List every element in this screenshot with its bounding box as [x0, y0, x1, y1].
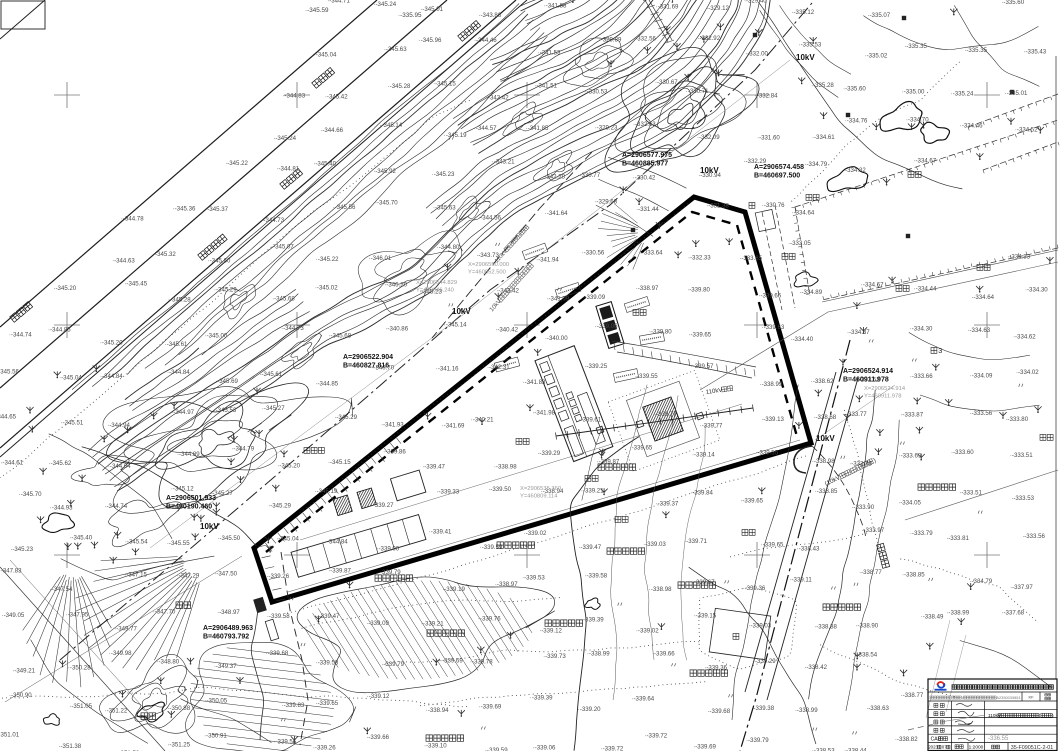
svg-text:·-338.77: ·-338.77: [901, 692, 924, 699]
svg-text:·-338.90: ·-338.90: [856, 622, 879, 629]
svg-text:·-339.06: ·-339.06: [595, 323, 618, 330]
svg-text:·-345.51: ·-345.51: [61, 420, 84, 427]
svg-text:·-334.05: ·-334.05: [898, 500, 921, 507]
svg-text:·-347.29: ·-347.29: [177, 573, 200, 580]
svg-text:·-333.80: ·-333.80: [1005, 416, 1028, 423]
svg-text:Y=460846.240: Y=460846.240: [416, 288, 454, 294]
svg-text:·-338.42: ·-338.42: [804, 664, 827, 671]
svg-text:·-344.64: ·-344.64: [108, 463, 131, 470]
svg-text:·-339.65: ·-339.65: [316, 700, 339, 707]
svg-text:·-338.43: ·-338.43: [797, 546, 820, 553]
svg-text:·-333.81: ·-333.81: [946, 535, 969, 542]
svg-text:·-339.79: ·-339.79: [381, 661, 404, 668]
svg-text:·-338.49: ·-338.49: [921, 613, 944, 620]
svg-text:·-335.02: ·-335.02: [865, 53, 888, 60]
svg-text:·-339.66: ·-339.66: [652, 651, 675, 658]
svg-text:·-344.73: ·-344.73: [261, 217, 284, 224]
svg-text:·-333.77: ·-333.77: [844, 411, 867, 418]
svg-text:·-345.15: ·-345.15: [433, 81, 456, 88]
svg-text:3: 3: [938, 346, 942, 355]
svg-text:·-344.85: ·-344.85: [316, 381, 339, 388]
svg-text:·-339.13: ·-339.13: [761, 416, 784, 423]
svg-text:·-334.70: ·-334.70: [906, 116, 929, 123]
svg-text:·-335.95: ·-335.95: [398, 12, 422, 19]
svg-text:B=460190.460: B=460190.460: [166, 504, 212, 511]
svg-text:·-334.76: ·-334.76: [845, 118, 868, 125]
svg-text:·-348.97: ·-348.97: [217, 609, 240, 616]
svg-text:·-333.51: ·-333.51: [1010, 452, 1033, 459]
svg-text:·-334.37: ·-334.37: [847, 329, 870, 336]
svg-text:·-339.86: ·-339.86: [383, 448, 406, 455]
svg-text:·-341.85: ·-341.85: [526, 125, 549, 132]
svg-text:·-333.69: ·-333.69: [899, 452, 922, 459]
svg-text:·-345.23: ·-345.23: [10, 546, 33, 553]
svg-text:·-333.87: ·-333.87: [900, 412, 923, 419]
svg-text:·-335.12: ·-335.12: [792, 9, 815, 16]
svg-text:·-345.68: ·-345.68: [328, 333, 351, 340]
svg-text:·-346.01: ·-346.01: [369, 255, 392, 262]
svg-text:·-341.53: ·-341.53: [538, 49, 561, 56]
svg-text:·-345.42: ·-345.42: [325, 94, 348, 101]
svg-text:·-351.38: ·-351.38: [59, 743, 82, 750]
svg-text:·-339.57: ·-339.57: [691, 363, 714, 370]
svg-text:·-339.33: ·-339.33: [437, 489, 460, 496]
svg-text:·-339.15: ·-339.15: [694, 613, 717, 620]
svg-text:·-344.56: ·-344.56: [478, 215, 501, 222]
svg-text:A=2906522.904: A=2906522.904: [343, 354, 393, 361]
svg-text:·-339.02: ·-339.02: [636, 627, 659, 634]
svg-text:·-339.87: ·-339.87: [597, 458, 620, 465]
svg-text:·-330.76: ·-330.76: [762, 202, 785, 209]
svg-text:·-338.85: ·-338.85: [902, 571, 925, 578]
svg-text:·-339.66: ·-339.66: [759, 292, 782, 299]
svg-text:·-338.63: ·-338.63: [866, 705, 889, 712]
svg-text:·-345.27: ·-345.27: [262, 405, 285, 412]
svg-text:A=2906577.975: A=2906577.975: [622, 152, 672, 159]
svg-text:·-345.20: ·-345.20: [54, 285, 77, 292]
svg-text:·-345.04: ·-345.04: [276, 536, 299, 543]
svg-text:·-345.29: ·-345.29: [214, 286, 237, 293]
svg-text:·-329.12: ·-329.12: [706, 5, 729, 12]
svg-text:·-339.41: ·-339.41: [429, 528, 452, 535]
svg-text:·-334.79: ·-334.79: [970, 578, 993, 585]
svg-text:·-339.11: ·-339.11: [790, 577, 813, 584]
svg-text:·-345.20: ·-345.20: [277, 463, 300, 470]
svg-text:·-333.97: ·-333.97: [862, 527, 885, 534]
svg-text:·-334.02: ·-334.02: [1016, 369, 1039, 376]
svg-text:·-333.66: ·-333.66: [910, 373, 933, 380]
svg-text:·-344.61: ·-344.61: [0, 460, 23, 467]
svg-text:·-338.88: ·-338.88: [814, 624, 837, 631]
svg-text:·-345.00: ·-345.00: [205, 332, 228, 339]
svg-text:·-339.65: ·-339.65: [761, 541, 784, 548]
svg-text:·-339.36: ·-339.36: [743, 585, 766, 592]
svg-text:·-340.21: ·-340.21: [471, 417, 494, 424]
svg-text:·-338.82: ·-338.82: [895, 736, 918, 743]
svg-text:·-341.09: ·-341.09: [547, 295, 570, 302]
svg-text:·-339.77: ·-339.77: [654, 411, 677, 418]
svg-text:·-345.20: ·-345.20: [100, 340, 123, 347]
svg-text:·-341.64: ·-341.64: [545, 210, 568, 217]
svg-text:A=2906524.914: A=2906524.914: [843, 368, 893, 375]
svg-text:·-345.19: ·-345.19: [444, 132, 467, 139]
svg-text:·-335.24: ·-335.24: [951, 91, 974, 98]
svg-text:·-338.99: ·-338.99: [795, 707, 818, 714]
svg-text:·-339.72: ·-339.72: [601, 745, 624, 751]
svg-text:·-339.59: ·-339.59: [485, 747, 508, 751]
svg-text:·-347.50: ·-347.50: [214, 571, 237, 578]
svg-text:·-349.21: ·-349.21: [12, 667, 35, 674]
svg-text:·-334.64: ·-334.64: [792, 209, 815, 216]
svg-text:·-340.00: ·-340.00: [545, 335, 568, 342]
svg-text:·-345.15: ·-345.15: [328, 459, 351, 466]
svg-text:·-345.24: ·-345.24: [273, 135, 296, 142]
svg-text:10kV: 10kV: [816, 434, 835, 443]
svg-text:·-335.00: ·-335.00: [902, 88, 925, 95]
svg-text:·-334.32: ·-334.32: [843, 167, 866, 174]
svg-text:·-335.26: ·-335.26: [969, 0, 992, 2]
svg-text:·-330.67: ·-330.67: [655, 79, 678, 86]
svg-text:·-329.40: ·-329.40: [744, 0, 767, 4]
svg-text:·-331.38: ·-331.38: [706, 203, 729, 210]
svg-text:·-351.25: ·-351.25: [167, 741, 190, 748]
svg-text:·-339.09: ·-339.09: [366, 620, 389, 627]
svg-text:35-F09051C-2-01: 35-F09051C-2-01: [1011, 745, 1054, 751]
svg-text:·-341.88: ·-341.88: [544, 2, 567, 9]
svg-text:·-349.05: ·-349.05: [2, 612, 25, 619]
svg-text:1:2000: 1:2000: [969, 744, 984, 750]
svg-text:·-345.23: ·-345.23: [432, 171, 455, 178]
svg-text:·-334.09: ·-334.09: [970, 373, 993, 380]
svg-text:·-345.63: ·-345.63: [384, 46, 407, 53]
svg-text:·-345.29: ·-345.29: [334, 414, 357, 421]
svg-text:·-335.01: ·-335.01: [1005, 90, 1028, 97]
svg-text:·-339.00: ·-339.00: [377, 545, 400, 552]
svg-text:·-329.23: ·-329.23: [595, 124, 618, 131]
svg-text:·-334.67: ·-334.67: [861, 282, 884, 289]
svg-text:·-344.80: ·-344.80: [437, 244, 460, 251]
svg-text:·-345.22: ·-345.22: [225, 160, 248, 167]
svg-text:·-339.69: ·-339.69: [479, 704, 502, 711]
svg-text:B=460827.816: B=460827.816: [343, 363, 389, 370]
svg-text:·-341.94: ·-341.94: [536, 256, 559, 263]
svg-text:·-339.72: ·-339.72: [645, 733, 668, 740]
svg-text:10kV: 10kV: [452, 307, 471, 316]
svg-text:·-339.79: ·-339.79: [746, 737, 769, 744]
svg-text:·-339.39: ·-339.39: [581, 617, 604, 624]
svg-text:B=460885.977: B=460885.977: [622, 161, 668, 168]
svg-text:·-339.09: ·-339.09: [582, 294, 605, 301]
svg-text:·-338.68: ·-338.68: [814, 414, 837, 421]
svg-text:·-339.47: ·-339.47: [317, 613, 340, 620]
svg-text:B=460697.500: B=460697.500: [754, 173, 800, 180]
svg-text:·-345.55: ·-345.55: [167, 540, 190, 547]
svg-text:·-335.60: ·-335.60: [843, 86, 866, 93]
svg-text:·-345.56: ·-345.56: [333, 204, 356, 211]
svg-text:·-351.05: ·-351.05: [69, 703, 92, 710]
svg-text:·-339.47: ·-339.47: [578, 544, 601, 551]
svg-text:X=2906535.360: X=2906535.360: [520, 486, 561, 492]
svg-text:·-345.68: ·-345.68: [272, 296, 295, 303]
svg-text:·-339.47: ·-339.47: [422, 464, 445, 471]
svg-text:·-344.97: ·-344.97: [171, 409, 194, 416]
svg-text:Y=460852.500: Y=460852.500: [468, 270, 506, 276]
svg-text:·-344.85: ·-344.85: [48, 327, 71, 334]
svg-text:·-335.35: ·-335.35: [904, 43, 927, 50]
svg-text:·-344.66: ·-344.66: [320, 127, 343, 134]
svg-text:CAD: CAD: [931, 736, 942, 742]
svg-text:·-344.73: ·-344.73: [281, 325, 304, 332]
svg-text:·-344.46: ·-344.46: [474, 37, 497, 44]
svg-text:·-334.67: ·-334.67: [914, 157, 937, 164]
svg-text:·-347.54: ·-347.54: [50, 586, 73, 593]
svg-text:·-345.60: ·-345.60: [208, 257, 231, 264]
svg-text:·-331.69: ·-331.69: [656, 4, 679, 11]
svg-text:·-339.76: ·-339.76: [478, 616, 501, 623]
svg-text:·-339.12: ·-339.12: [367, 693, 390, 700]
svg-text:·-345.45: ·-345.45: [124, 281, 147, 288]
svg-text:·-338.54: ·-338.54: [855, 652, 878, 659]
svg-text:·-347.15: ·-347.15: [124, 571, 147, 578]
svg-text:·-338.85: ·-338.85: [815, 488, 838, 495]
svg-text:·-345.40: ·-345.40: [69, 535, 92, 542]
svg-text:·-334.30: ·-334.30: [1025, 286, 1048, 293]
svg-text:110kV: 110kV: [705, 387, 724, 396]
svg-text:·-350.88: ·-350.88: [167, 705, 190, 712]
svg-text:A2350039851: A2350039851: [996, 695, 1020, 700]
svg-text:·-339.19: ·-339.19: [442, 586, 465, 593]
svg-text:·-332.84: ·-332.84: [755, 92, 778, 99]
svg-text:·-345.24: ·-345.24: [374, 1, 397, 8]
svg-text:·-339.14: ·-339.14: [692, 451, 715, 458]
svg-text:·-339.68: ·-339.68: [707, 708, 730, 715]
svg-text:·-339.53: ·-339.53: [522, 575, 545, 582]
svg-text:·-339.83: ·-339.83: [282, 702, 305, 709]
svg-text:·-334.30: ·-334.30: [910, 325, 933, 332]
svg-text:·-339.03: ·-339.03: [643, 541, 666, 548]
svg-text:Y=460809.114: Y=460809.114: [520, 494, 558, 500]
svg-text:10kV: 10kV: [488, 297, 503, 313]
svg-text:·-339.50: ·-339.50: [488, 486, 511, 493]
svg-text:·-329.68: ·-329.68: [594, 198, 617, 205]
svg-text:·-335.43: ·-335.43: [1024, 48, 1047, 55]
svg-text:·-345.04: ·-345.04: [59, 374, 82, 381]
svg-text:·-342.31: ·-342.31: [487, 364, 510, 371]
svg-text:·-343.21: ·-343.21: [492, 159, 515, 166]
svg-text:·-344.78: ·-344.78: [121, 216, 144, 223]
svg-text:X=2906524.914: X=2906524.914: [864, 386, 906, 392]
svg-text:·-344.84: ·-344.84: [325, 538, 348, 545]
svg-text:·-339.37: ·-339.37: [656, 501, 679, 508]
svg-text:·-345.96: ·-345.96: [419, 37, 442, 44]
svg-text:·-335.53: ·-335.53: [799, 41, 822, 48]
svg-text:·-344.63: ·-344.63: [112, 258, 135, 265]
svg-text:·-347.70: ·-347.70: [153, 609, 176, 616]
svg-text:·-341.83: ·-341.83: [523, 379, 546, 386]
svg-text:·-345.37: ·-345.37: [205, 206, 228, 213]
svg-text:·-347.95: ·-347.95: [66, 612, 89, 619]
svg-text:·-339.71: ·-339.71: [684, 538, 707, 545]
svg-text:A=2906574.458: A=2906574.458: [754, 164, 804, 171]
svg-text:·-332.33: ·-332.33: [688, 254, 711, 261]
svg-text:·-344.57: ·-344.57: [474, 125, 497, 132]
svg-text:·-334.62: ·-334.62: [1013, 334, 1036, 341]
svg-text:·-339.29: ·-339.29: [753, 658, 776, 665]
svg-text:·-345.59: ·-345.59: [305, 7, 329, 14]
svg-text:·-333.56: ·-333.56: [1022, 533, 1045, 540]
svg-text:·-330.71: ·-330.71: [686, 88, 709, 95]
svg-text:·-344.93: ·-344.93: [50, 505, 73, 512]
svg-text:·-331.60: ·-331.60: [757, 135, 780, 142]
svg-text:·-329.89: ·-329.89: [599, 36, 622, 43]
svg-text:·-351.22: ·-351.22: [105, 708, 128, 715]
svg-text:·-334.40: ·-334.40: [791, 336, 814, 343]
svg-text:·-339.39: ·-339.39: [530, 694, 553, 701]
svg-text:·-345.28: ·-345.28: [388, 83, 411, 90]
svg-text:·-332.63: ·-332.63: [633, 121, 656, 128]
svg-text:·-339.69: ·-339.69: [440, 657, 463, 664]
svg-text:·-338.77: ·-338.77: [859, 569, 882, 576]
svg-text:·-344.84: ·-344.84: [100, 373, 123, 380]
svg-text:-336.55: -336.55: [988, 736, 1009, 742]
svg-text:·-330.56: ·-330.56: [582, 250, 605, 257]
svg-text:·-339.64: ·-339.64: [632, 696, 655, 703]
svg-text:·-338.62: ·-338.62: [811, 378, 834, 385]
svg-text:·-343.42: ·-343.42: [486, 95, 509, 102]
svg-text:·-333.51: ·-333.51: [959, 489, 982, 496]
svg-text:·-349.77: ·-349.77: [114, 626, 137, 633]
svg-text:·-338.99: ·-338.99: [946, 610, 969, 617]
svg-text:·-339.58: ·-339.58: [316, 659, 339, 666]
svg-text:·-349.98: ·-349.98: [109, 650, 132, 657]
svg-text:·-340.42: ·-340.42: [495, 327, 518, 334]
svg-text:·-339.12: ·-339.12: [539, 628, 562, 635]
svg-text:10kV: 10kV: [200, 522, 219, 531]
svg-text:·-338.97: ·-338.97: [495, 581, 518, 588]
svg-text:·-332.09: ·-332.09: [697, 134, 720, 141]
svg-text:·-340.86: ·-340.86: [385, 325, 408, 332]
svg-text:·-332.56: ·-332.56: [633, 35, 656, 42]
svg-text:·-345.22: ·-345.22: [316, 256, 339, 263]
svg-text:·-338.44: ·-338.44: [844, 748, 867, 751]
svg-text:·-338.98: ·-338.98: [649, 586, 672, 593]
svg-text:·-345.04: ·-345.04: [314, 51, 337, 58]
svg-text:·-339.65: ·-339.65: [740, 498, 763, 505]
svg-text:·-335.60: ·-335.60: [1001, 0, 1024, 6]
svg-text:·-333.85: ·-333.85: [739, 255, 762, 262]
svg-text:·-339.26: ·-339.26: [266, 573, 289, 580]
svg-text:·-330.53: ·-330.53: [585, 88, 608, 95]
svg-text:·-339.56: ·-339.56: [274, 738, 297, 745]
svg-text:X=2906544.829: X=2906544.829: [416, 280, 457, 286]
svg-text:·-345.01: ·-345.01: [420, 6, 443, 13]
svg-text:·-339.25: ·-339.25: [584, 363, 607, 370]
svg-text:·-339.84: ·-339.84: [690, 489, 713, 496]
svg-text:·-339.65: ·-339.65: [689, 332, 712, 339]
svg-text:·-345.92: ·-345.92: [373, 168, 396, 175]
svg-text:·-339.06: ·-339.06: [533, 744, 556, 751]
svg-text:·-345.14: ·-345.14: [380, 122, 403, 129]
svg-text:·-345.69: ·-345.69: [215, 378, 238, 385]
svg-text:·-333.56: ·-333.56: [970, 410, 993, 417]
svg-text:·-344.89: ·-344.89: [177, 451, 200, 458]
svg-text:·-345.19: ·-345.19: [315, 488, 338, 495]
svg-text:·-339.58: ·-339.58: [585, 572, 608, 579]
svg-text:·-333.64: ·-333.64: [640, 250, 663, 257]
svg-text:·-345.70: ·-345.70: [19, 491, 42, 498]
svg-text:·-345.54: ·-345.54: [125, 539, 148, 546]
svg-text:·-339.61: ·-339.61: [579, 416, 602, 423]
svg-text:·-335.22: ·-335.22: [894, 0, 917, 1]
svg-text:·-345.56: ·-345.56: [0, 369, 20, 376]
svg-text:·-333.79: ·-333.79: [910, 530, 933, 537]
svg-text:B=460911.978: B=460911.978: [843, 377, 889, 384]
svg-text:·-339.69: ·-339.69: [693, 744, 716, 751]
svg-text:·-339.80: ·-339.80: [687, 287, 710, 294]
svg-text:·-339.77: ·-339.77: [700, 423, 723, 430]
svg-text:·-337.68: ·-337.68: [1002, 610, 1025, 617]
svg-text:·-341.93: ·-341.93: [381, 421, 404, 428]
svg-text:·-339.87: ·-339.87: [328, 567, 351, 574]
svg-text:·-334.64: ·-334.64: [971, 294, 994, 301]
svg-text:·-346.20: ·-346.20: [384, 281, 407, 288]
svg-text:·-339.55: ·-339.55: [635, 373, 658, 380]
svg-text:·-337.97: ·-337.97: [1010, 584, 1033, 591]
svg-text:·-345.36: ·-345.36: [173, 206, 196, 213]
svg-text:·-342.28: ·-342.28: [542, 174, 565, 181]
svg-text:·-334.79: ·-334.79: [805, 161, 828, 168]
svg-text:·-345.28: ·-345.28: [168, 297, 191, 304]
svg-text:·-334.46: ·-334.46: [960, 123, 983, 130]
svg-text:·-339.63: ·-339.63: [762, 324, 785, 331]
svg-text:·-331.44: ·-331.44: [636, 206, 659, 213]
svg-text:·-344.79: ·-344.79: [231, 445, 254, 452]
svg-text:): ): [872, 457, 877, 464]
svg-text:·-338.98: ·-338.98: [494, 463, 517, 470]
svg-text:·-330.77: ·-330.77: [577, 172, 600, 179]
svg-text:·-339.38: ·-339.38: [751, 705, 774, 712]
svg-text:·-344.65: ·-344.65: [0, 414, 17, 421]
svg-text:·-339.66: ·-339.66: [366, 734, 389, 741]
svg-text:·-339.55: ·-339.55: [755, 450, 778, 457]
svg-text:·-351.01: ·-351.01: [0, 732, 20, 739]
svg-text:·-332.00: ·-332.00: [745, 50, 768, 57]
svg-text:·-345.53: ·-345.53: [214, 407, 237, 414]
svg-text:·-338.98: ·-338.98: [812, 458, 835, 465]
svg-text:·-343.86: ·-343.86: [479, 12, 502, 19]
svg-text:·-350.90: ·-350.90: [9, 692, 32, 699]
svg-text:·-334.89: ·-334.89: [799, 289, 822, 296]
svg-text:·-338.94: ·-338.94: [426, 707, 449, 714]
svg-text:·-345.29: ·-345.29: [268, 503, 291, 510]
svg-text:·-339.29: ·-339.29: [537, 450, 560, 457]
svg-text:·-339.58: ·-339.58: [267, 613, 290, 620]
svg-text:·-339.20: ·-339.20: [578, 706, 601, 713]
svg-text:·-344.74: ·-344.74: [9, 332, 32, 339]
svg-text:·-333.05: ·-333.05: [788, 240, 811, 247]
svg-text:·-339.21: ·-339.21: [421, 621, 444, 628]
svg-text:A=2906501.933: A=2906501.933: [166, 495, 216, 502]
svg-text:·-339.68: ·-339.68: [266, 650, 289, 657]
svg-text:X=2906550.000: X=2906550.000: [468, 262, 509, 268]
svg-text:·-350.28: ·-350.28: [68, 665, 91, 672]
svg-text:·-345.50: ·-345.50: [218, 535, 241, 542]
svg-text:·-345.62: ·-345.62: [49, 460, 72, 467]
svg-text:·-335.07: ·-335.07: [868, 12, 891, 19]
svg-text:·-344.94: ·-344.94: [107, 422, 130, 429]
svg-text:·-345.61: ·-345.61: [165, 341, 188, 348]
svg-text:·-350.05: ·-350.05: [205, 698, 228, 705]
